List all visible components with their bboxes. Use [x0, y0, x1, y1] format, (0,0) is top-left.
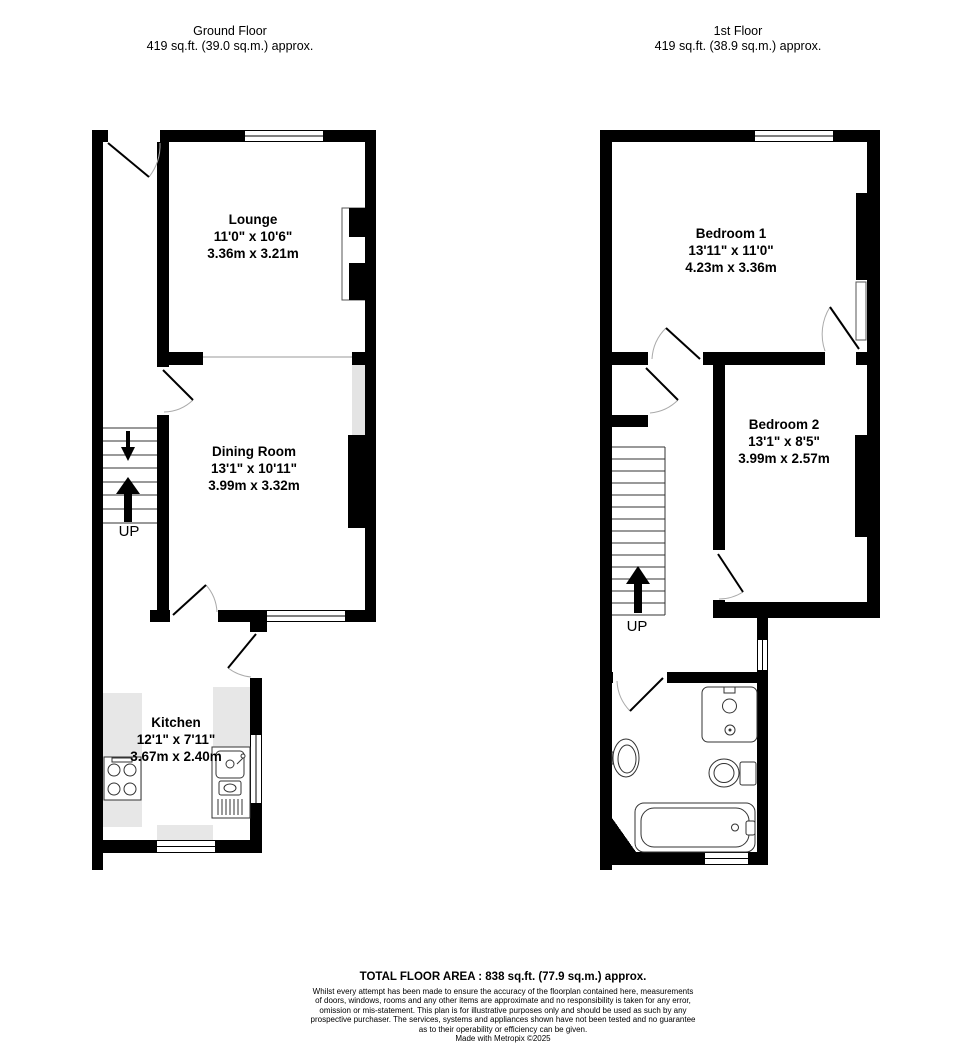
lounge-chimney-breast	[349, 208, 366, 237]
bedroom1-door	[652, 328, 700, 359]
bathroom-window	[705, 852, 748, 865]
disclaimer-line: prospective purchaser. The services, sys…	[311, 1015, 696, 1024]
room-name: Kitchen	[130, 714, 222, 731]
bedroom2-door	[718, 554, 743, 599]
footer: TOTAL FLOOR AREA : 838 sq.ft. (77.9 sq.m…	[311, 971, 696, 1043]
disclaimer-line: of doors, windows, rooms and any other i…	[311, 996, 696, 1005]
kitchen-rear-window	[157, 840, 215, 853]
disclaimer-line: omission or mis-statement. This plan is …	[311, 1006, 696, 1015]
first-floor-title: 1st Floor	[655, 24, 822, 39]
bathroom-door	[617, 678, 663, 711]
bedroom2-chimney-breast	[855, 435, 868, 537]
stairs-down-arrow-icon	[121, 431, 135, 461]
room-dims-imperial: 12'1" x 7'11"	[130, 731, 222, 748]
first-stairs-up-label: UP	[627, 618, 648, 635]
bedroom1-chimney-recess	[856, 282, 866, 340]
first-stairs	[612, 447, 665, 615]
stairs-up-arrow-icon	[116, 477, 140, 522]
dining-alcove	[352, 358, 366, 435]
ground-floor-header: Ground Floor 419 sq.ft. (39.0 sq.m.) app…	[147, 24, 314, 54]
bath-icon	[635, 803, 755, 852]
room-name: Dining Room	[208, 443, 300, 460]
room-dims-imperial: 13'1" x 8'5"	[738, 433, 830, 450]
floorplan-page: Ground Floor 419 sq.ft. (39.0 sq.m.) app…	[0, 0, 980, 1036]
disclaimer-line: Whilst every attempt has been made to en…	[311, 987, 696, 996]
room-dims-metric: 3.67m x 2.40m	[130, 748, 222, 765]
dining-chimney-breast	[348, 435, 366, 528]
kitchen-back-door	[228, 634, 256, 677]
landing-door	[646, 368, 678, 413]
kitchen-side-window	[250, 735, 262, 803]
room-dims-metric: 3.36m x 3.21m	[207, 245, 299, 262]
ground-floor-title: Ground Floor	[147, 24, 314, 39]
hall-dining-door	[163, 370, 193, 412]
room-dims-imperial: 11'0" x 10'6"	[207, 228, 299, 245]
dining-kitchen-door	[173, 585, 217, 615]
room-dims-metric: 3.99m x 3.32m	[208, 477, 300, 494]
floorplan-drawing	[0, 0, 980, 1036]
ground-stairs	[103, 428, 157, 523]
total-floor-area: TOTAL FLOOR AREA : 838 sq.ft. (77.9 sq.m…	[311, 971, 696, 983]
room-name: Lounge	[207, 211, 299, 228]
first-doors	[617, 307, 859, 711]
room-dims-metric: 3.99m x 2.57m	[738, 450, 830, 467]
room-label-lounge: Lounge 11'0" x 10'6" 3.36m x 3.21m	[207, 211, 299, 262]
landing-window	[757, 640, 768, 670]
room-name: Bedroom 1	[685, 225, 777, 242]
room-dims-imperial: 13'1" x 10'11"	[208, 460, 300, 477]
stairs-up-arrow-icon	[626, 566, 650, 613]
lounge-window	[245, 130, 323, 142]
metropix-credit: Made with Metropix ©2025	[311, 1034, 696, 1043]
bedroom1-window	[755, 130, 833, 142]
room-label-dining: Dining Room 13'1" x 10'11" 3.99m x 3.32m	[208, 443, 300, 494]
room-label-bedroom2: Bedroom 2 13'1" x 8'5" 3.99m x 2.57m	[738, 416, 830, 467]
dining-window	[267, 610, 345, 622]
ground-floor-area: 419 sq.ft. (39.0 sq.m.) approx.	[147, 39, 314, 54]
bedroom1-bedroom2-door	[822, 307, 859, 351]
first-floor-area: 419 sq.ft. (38.9 sq.m.) approx.	[655, 39, 822, 54]
shower-icon	[702, 687, 757, 742]
room-dims-metric: 4.23m x 3.36m	[685, 259, 777, 276]
room-label-kitchen: Kitchen 12'1" x 7'11" 3.67m x 2.40m	[130, 714, 222, 765]
disclaimer-line: as to their operability or efficiency ca…	[311, 1025, 696, 1034]
bedroom1-chimney-breast	[856, 193, 868, 280]
toilet-icon	[709, 759, 756, 787]
basin-icon	[612, 739, 639, 777]
room-name: Bedroom 2	[738, 416, 830, 433]
bathroom-chamfer-wall	[600, 818, 636, 865]
front-door	[108, 143, 160, 177]
first-floor-header: 1st Floor 419 sq.ft. (38.9 sq.m.) approx…	[655, 24, 822, 54]
room-label-bedroom1: Bedroom 1 13'11" x 11'0" 4.23m x 3.36m	[685, 225, 777, 276]
room-dims-imperial: 13'11" x 11'0"	[685, 242, 777, 259]
ground-stairs-up-label: UP	[119, 523, 140, 540]
